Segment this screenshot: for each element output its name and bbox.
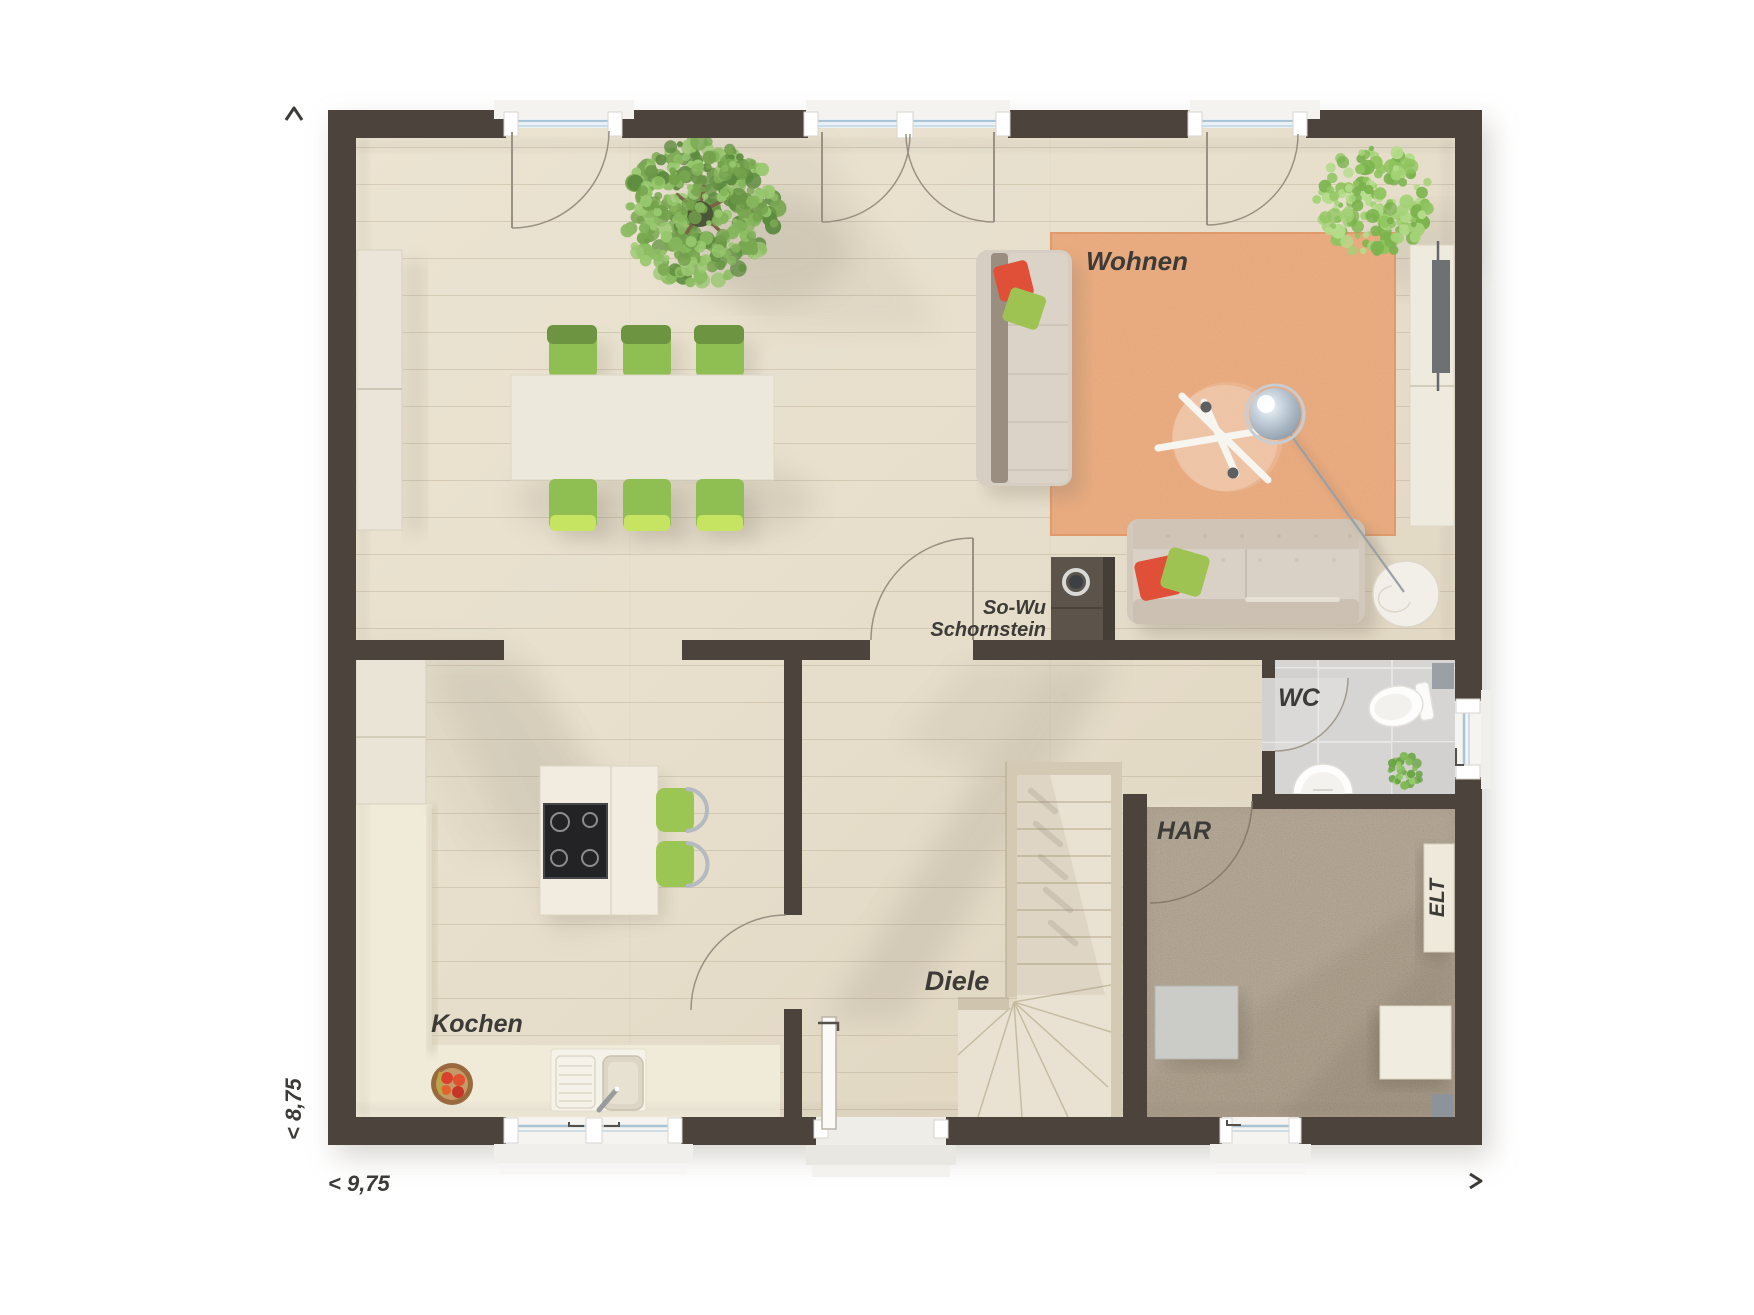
svg-text:HAR: HAR <box>1157 817 1211 845</box>
svg-text:Schornstein: Schornstein <box>930 619 1046 641</box>
svg-text:< 9,75: < 9,75 <box>328 1171 391 1196</box>
svg-text:< 8,75: < 8,75 <box>281 1077 306 1140</box>
svg-text:Diele: Diele <box>925 966 990 996</box>
svg-text:WC: WC <box>1278 684 1321 712</box>
svg-text:Wohnen: Wohnen <box>1086 246 1188 276</box>
svg-text:Kochen: Kochen <box>431 1010 523 1038</box>
svg-text:So-Wu: So-Wu <box>983 597 1046 619</box>
svg-text:ELT: ELT <box>1426 877 1449 917</box>
